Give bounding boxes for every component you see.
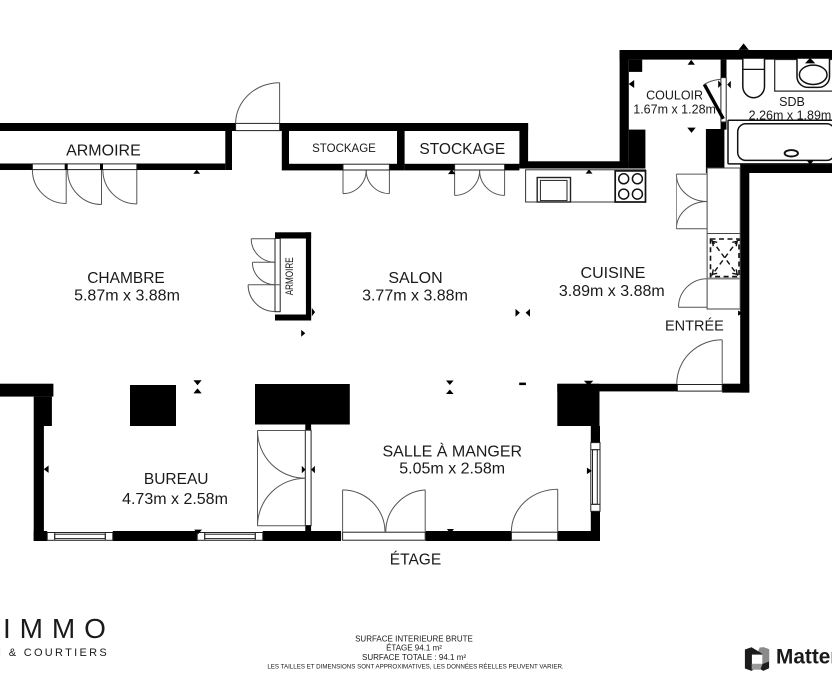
svg-text:BUREAU: BUREAU: [144, 471, 209, 488]
svg-text:2.26m x 1.89m: 2.26m x 1.89m: [749, 108, 832, 122]
svg-text:SDB: SDB: [779, 95, 805, 109]
svg-text:ARMOIRE: ARMOIRE: [284, 257, 296, 295]
svg-text:ÉTAGE: ÉTAGE: [390, 552, 441, 569]
svg-text:IMMO: IMMO: [3, 613, 115, 644]
svg-text:3.77m x 3.88m: 3.77m x 3.88m: [362, 288, 468, 305]
svg-text:LES TAILLES ET DIMENSIONS SONT: LES TAILLES ET DIMENSIONS SONT APPROXIMA…: [267, 664, 564, 671]
svg-text:ENTRÉE: ENTRÉE: [665, 318, 724, 335]
svg-text:STOCKAGE: STOCKAGE: [312, 143, 376, 155]
svg-text:5.05m x 2.58m: 5.05m x 2.58m: [399, 460, 505, 477]
svg-text:STOCKAGE: STOCKAGE: [419, 141, 505, 158]
svg-text:SALLE À MANGER: SALLE À MANGER: [382, 442, 522, 461]
svg-text:5.87m x 3.88m: 5.87m x 3.88m: [74, 288, 180, 305]
svg-text:1.67m x 1.28m: 1.67m x 1.28m: [633, 102, 716, 116]
svg-text:COULOIR: COULOIR: [646, 88, 703, 102]
svg-text:CUISINE: CUISINE: [581, 265, 646, 282]
svg-text:CHAMBRE: CHAMBRE: [87, 270, 165, 287]
svg-text:SURFACE TOTALE : 94.1 m²: SURFACE TOTALE : 94.1 m²: [362, 653, 466, 662]
svg-text:SALON: SALON: [388, 270, 442, 287]
svg-text:SURFACE INTERIEURE BRUTE: SURFACE INTERIEURE BRUTE: [355, 635, 473, 644]
svg-text:ARMOIRE: ARMOIRE: [66, 142, 141, 159]
svg-text:3.89m x 3.88m: 3.89m x 3.88m: [559, 283, 665, 300]
svg-text:4.73m x 2.58m: 4.73m x 2.58m: [122, 491, 228, 508]
svg-text:I & COURTIERS: I & COURTIERS: [0, 647, 109, 659]
svg-text:ÉTAGE 94.1 m²: ÉTAGE 94.1 m²: [386, 644, 442, 653]
svg-text:Matterport: Matterport: [776, 646, 832, 669]
